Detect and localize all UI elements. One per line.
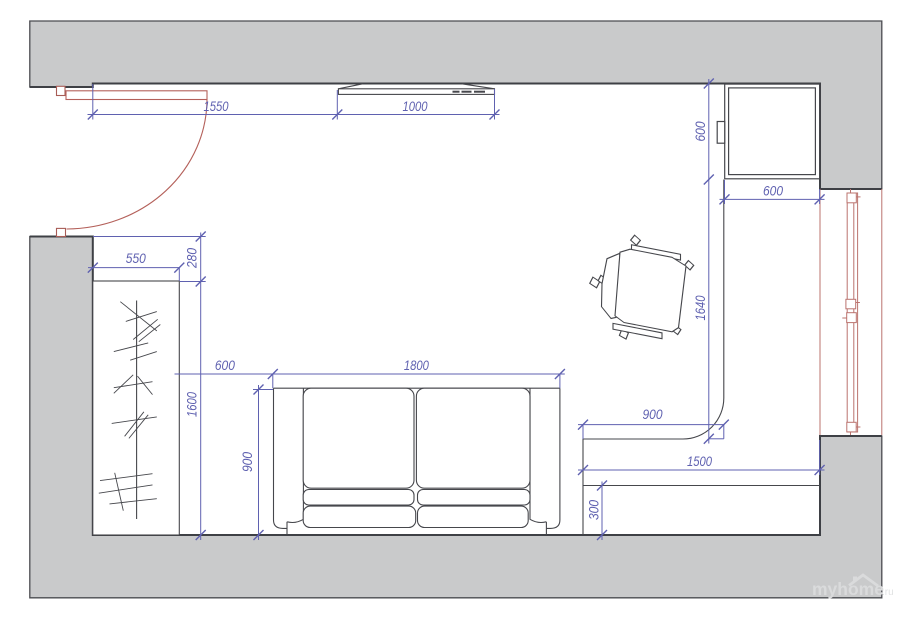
svg-text:1640: 1640 [692, 295, 708, 320]
svg-text:300: 300 [586, 500, 602, 520]
svg-text:.ru: .ru [882, 587, 894, 598]
svg-text:900: 900 [643, 406, 663, 422]
svg-text:600: 600 [692, 121, 708, 141]
svg-text:1500: 1500 [687, 453, 712, 469]
svg-text:1800: 1800 [404, 357, 429, 373]
svg-text:1000: 1000 [403, 98, 428, 114]
svg-text:280: 280 [184, 248, 200, 269]
svg-text:900: 900 [239, 452, 255, 472]
svg-text:1600: 1600 [184, 392, 200, 417]
svg-text:600: 600 [763, 183, 783, 199]
svg-text:600: 600 [215, 357, 235, 373]
svg-text:550: 550 [126, 250, 146, 266]
svg-text:1550: 1550 [204, 98, 229, 114]
